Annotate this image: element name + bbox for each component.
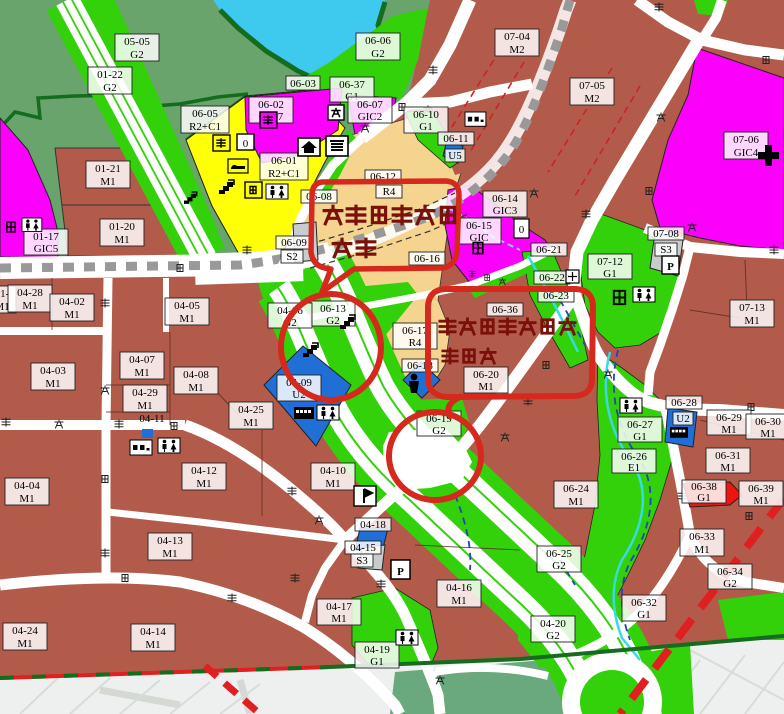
svg-text:04-04: 04-04 [14, 480, 40, 492]
svg-text:06-20: 06-20 [473, 369, 499, 381]
svg-text:01-20: 01-20 [109, 221, 135, 233]
svg-text:GIC4: GIC4 [734, 147, 759, 159]
svg-text:07-04: 07-04 [504, 31, 530, 43]
svg-text:06-25: 06-25 [546, 548, 572, 560]
svg-text:04-25: 04-25 [238, 404, 264, 416]
svg-text:01-21: 01-21 [95, 163, 121, 175]
svg-text:G2: G2 [130, 49, 143, 61]
svg-text:M1: M1 [760, 428, 775, 440]
svg-text:06-21: 06-21 [536, 244, 562, 256]
svg-text:06-37: 06-37 [339, 79, 365, 91]
svg-text:G1: G1 [633, 431, 646, 443]
svg-text:04-19: 04-19 [364, 644, 390, 656]
svg-text:M1: M1 [45, 378, 60, 390]
svg-text:06-02: 06-02 [258, 99, 284, 111]
svg-text:M1: M1 [744, 315, 759, 327]
svg-text:04-20: 04-20 [540, 618, 566, 630]
svg-text:06-16: 06-16 [414, 253, 440, 265]
svg-text:S3: S3 [660, 244, 672, 256]
svg-text:01-22: 01-22 [97, 69, 123, 81]
svg-text:06-31: 06-31 [715, 450, 741, 462]
svg-text:06-29: 06-29 [716, 412, 742, 424]
svg-text:G1: G1 [637, 609, 650, 621]
svg-text:01-17: 01-17 [33, 231, 59, 243]
svg-text:04-03: 04-03 [40, 365, 66, 377]
svg-text:G2: G2 [723, 578, 736, 590]
svg-text:M1: M1 [22, 300, 37, 312]
svg-text:R2+C1: R2+C1 [189, 121, 221, 133]
svg-text:0: 0 [243, 138, 249, 150]
svg-text:G2: G2 [103, 82, 116, 94]
svg-text:G1: G1 [419, 121, 432, 133]
svg-text:04-10: 04-10 [320, 465, 346, 477]
svg-text:06-34: 06-34 [717, 566, 743, 578]
svg-text:06-07: 06-07 [357, 99, 383, 111]
svg-text:R2+C1: R2+C1 [268, 168, 300, 180]
svg-text:M1: M1 [19, 493, 34, 505]
svg-text:06-13: 06-13 [320, 303, 346, 315]
svg-text:M1: M1 [134, 367, 149, 379]
svg-text:M1: M1 [162, 548, 177, 560]
svg-text:07-05: 07-05 [579, 80, 605, 92]
svg-text:06-05: 06-05 [192, 108, 218, 120]
svg-text:06-28: 06-28 [671, 397, 697, 409]
svg-text:M1: M1 [137, 400, 152, 412]
svg-text:G2: G2 [432, 425, 445, 437]
svg-text:06-39: 06-39 [748, 483, 774, 495]
svg-text:04-18: 04-18 [360, 519, 386, 531]
svg-text:G2: G2 [371, 48, 384, 60]
svg-text:M1: M1 [720, 462, 735, 474]
svg-text:06-01: 06-01 [271, 155, 297, 167]
svg-text:06-33: 06-33 [689, 531, 715, 543]
svg-text:06-17: 06-17 [402, 325, 428, 337]
svg-text:GIC2: GIC2 [358, 111, 382, 123]
svg-text:M1: M1 [64, 309, 79, 321]
svg-text:07-12: 07-12 [597, 256, 623, 268]
svg-text:04-29: 04-29 [132, 387, 158, 399]
svg-text:G1: G1 [603, 268, 616, 280]
svg-text:M1: M1 [721, 424, 736, 436]
svg-text:GIC3: GIC3 [493, 205, 518, 217]
svg-text:04-13: 04-13 [157, 535, 183, 547]
svg-text:E1: E1 [628, 462, 640, 474]
svg-text:04-05: 04-05 [174, 300, 200, 312]
svg-text:07-06: 07-06 [733, 134, 759, 146]
svg-text:04-28: 04-28 [17, 287, 43, 299]
svg-text:06-15: 06-15 [466, 220, 492, 232]
svg-text:06-22: 06-22 [539, 272, 565, 284]
svg-text:M1: M1 [100, 176, 115, 188]
svg-text:07-13: 07-13 [739, 302, 765, 314]
svg-text:M1: M1 [694, 544, 709, 556]
svg-text:G1: G1 [370, 656, 383, 668]
svg-text:M1: M1 [568, 496, 583, 508]
svg-text:U5: U5 [448, 150, 462, 162]
svg-text:M1: M1 [179, 313, 194, 325]
svg-text:06-11: 06-11 [443, 133, 468, 145]
svg-text:06-30: 06-30 [755, 416, 781, 428]
svg-text:U2: U2 [676, 413, 689, 425]
svg-text:06-03: 06-03 [290, 78, 316, 90]
svg-text:04-02: 04-02 [59, 296, 85, 308]
svg-text:M1: M1 [753, 495, 768, 507]
svg-text:M1: M1 [188, 382, 203, 394]
svg-text:06-10: 06-10 [413, 109, 439, 121]
svg-text:R4: R4 [383, 186, 396, 198]
svg-text:M1: M1 [17, 638, 32, 650]
svg-text:04-15: 04-15 [350, 542, 376, 554]
svg-text:06-06: 06-06 [365, 35, 391, 47]
svg-text:M1: M1 [243, 417, 258, 429]
svg-text:M2: M2 [584, 93, 599, 105]
svg-text:06-24: 06-24 [563, 483, 589, 495]
svg-text:04-07: 04-07 [129, 354, 155, 366]
svg-text:R4: R4 [409, 337, 422, 349]
svg-text:04-14: 04-14 [140, 626, 166, 638]
svg-text:GIC5: GIC5 [34, 243, 59, 255]
svg-text:M1: M1 [145, 639, 160, 651]
svg-text:07-08: 07-08 [653, 228, 679, 240]
svg-text:06-09: 06-09 [281, 237, 307, 249]
svg-text:M1: M1 [451, 595, 466, 607]
svg-text:04-17: 04-17 [326, 601, 352, 613]
svg-text:M1: M1 [478, 381, 493, 393]
svg-text:S3: S3 [356, 555, 368, 567]
svg-text:G2: G2 [552, 560, 565, 572]
svg-text:06-27: 06-27 [627, 419, 653, 431]
svg-text:06-32: 06-32 [631, 597, 657, 609]
svg-text:M1: M1 [331, 613, 346, 625]
svg-text:05-05: 05-05 [124, 36, 150, 48]
svg-text:G1: G1 [697, 492, 710, 504]
svg-text:G2: G2 [326, 315, 339, 327]
svg-text:M1: M1 [114, 234, 129, 246]
svg-text:0: 0 [519, 224, 525, 236]
svg-text:M1: M1 [325, 478, 340, 490]
svg-text:P: P [397, 566, 404, 578]
svg-text:04-08: 04-08 [183, 369, 209, 381]
svg-text:04-24: 04-24 [12, 625, 38, 637]
svg-text:G2: G2 [546, 630, 559, 642]
svg-text:04-11: 04-11 [139, 413, 164, 425]
svg-text:M1: M1 [196, 478, 211, 490]
svg-text:06-14: 06-14 [492, 193, 518, 205]
svg-text:S2: S2 [286, 251, 298, 263]
svg-text:P: P [667, 261, 674, 273]
svg-text:06-36: 06-36 [492, 304, 518, 316]
svg-text:04-12: 04-12 [191, 465, 217, 477]
svg-text:M2: M2 [509, 44, 524, 56]
svg-text:04-16: 04-16 [446, 582, 472, 594]
